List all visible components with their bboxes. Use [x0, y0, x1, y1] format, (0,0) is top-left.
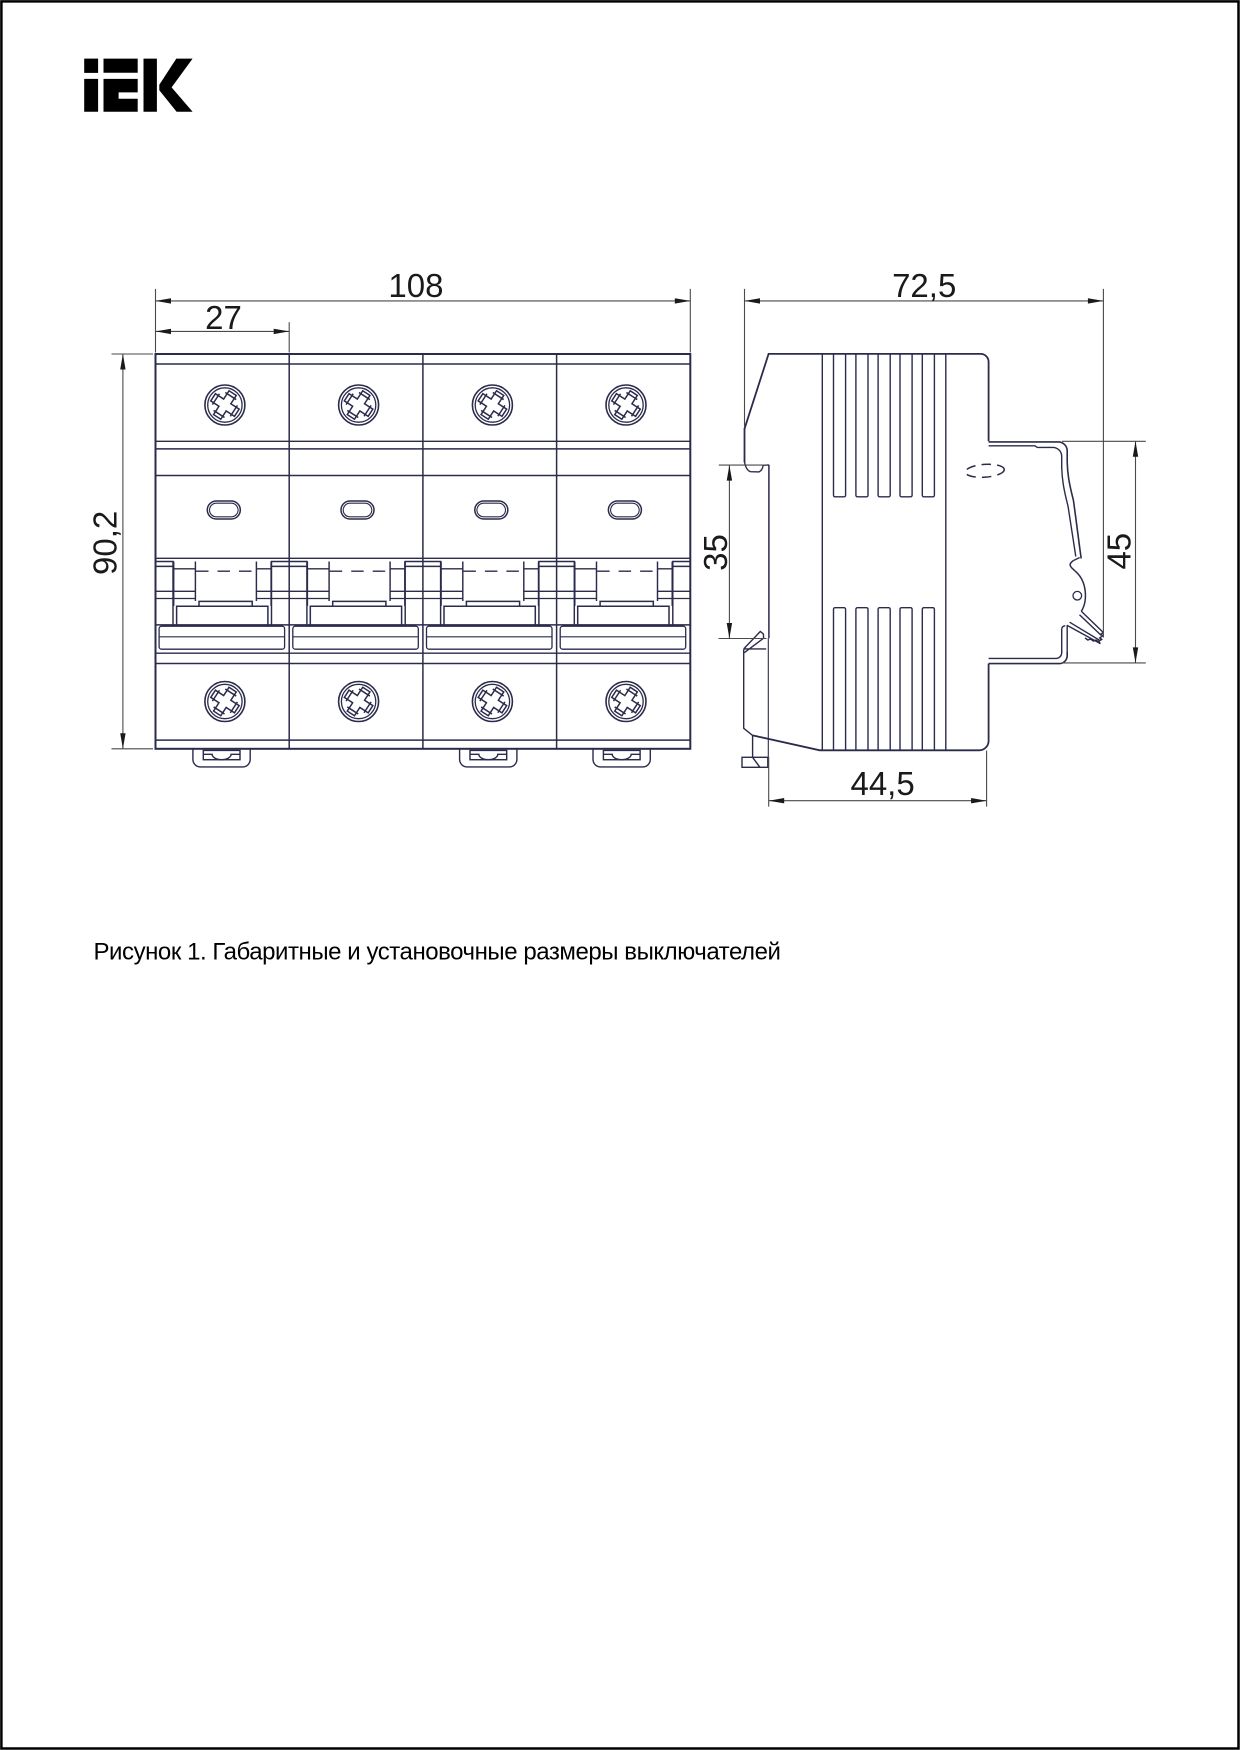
svg-text:72,5: 72,5: [892, 267, 956, 304]
svg-text:45: 45: [1100, 533, 1137, 570]
svg-text:90,2: 90,2: [87, 511, 124, 575]
svg-text:44,5: 44,5: [850, 765, 914, 802]
svg-text:Рисунок 1. Габаритные и устано: Рисунок 1. Габаритные и установочные раз…: [94, 938, 781, 965]
svg-text:108: 108: [388, 267, 443, 304]
svg-text:35: 35: [697, 534, 734, 571]
svg-text:27: 27: [205, 299, 242, 336]
